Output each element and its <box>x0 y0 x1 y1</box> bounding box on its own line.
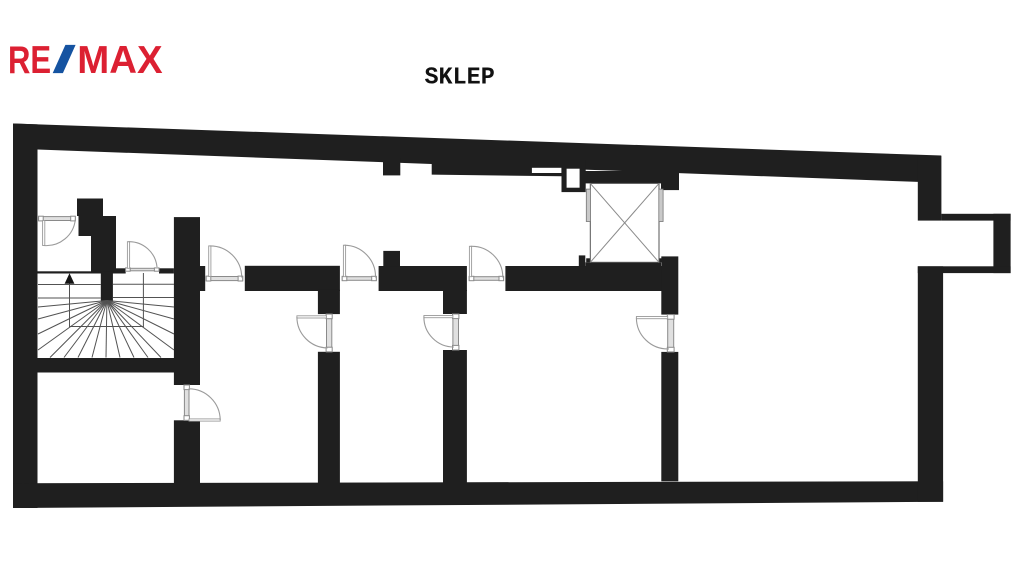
svg-text:SKLEP: SKLEP <box>425 64 495 91</box>
svg-text:MAX: MAX <box>77 39 162 82</box>
svg-text:RE: RE <box>8 39 51 82</box>
